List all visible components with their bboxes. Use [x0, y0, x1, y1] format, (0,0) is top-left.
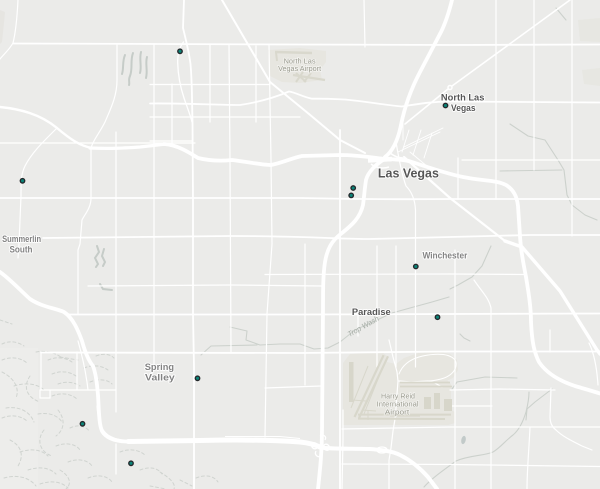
svg-text:North Las: North Las [441, 92, 485, 102]
svg-text:Valley: Valley [145, 373, 175, 384]
svg-text:Vegas Airport: Vegas Airport [278, 66, 321, 73]
svg-text:Winchester: Winchester [422, 251, 467, 261]
svg-text:Vegas: Vegas [451, 103, 476, 113]
svg-text:Las Vegas: Las Vegas [378, 166, 439, 181]
svg-text:Paradise: Paradise [352, 307, 391, 318]
svg-text:Spring: Spring [145, 362, 174, 373]
svg-text:South: South [10, 244, 33, 254]
svg-text:Airport: Airport [385, 407, 411, 416]
svg-text:North Las: North Las [284, 59, 317, 66]
svg-text:Summerlin: Summerlin [2, 234, 41, 244]
